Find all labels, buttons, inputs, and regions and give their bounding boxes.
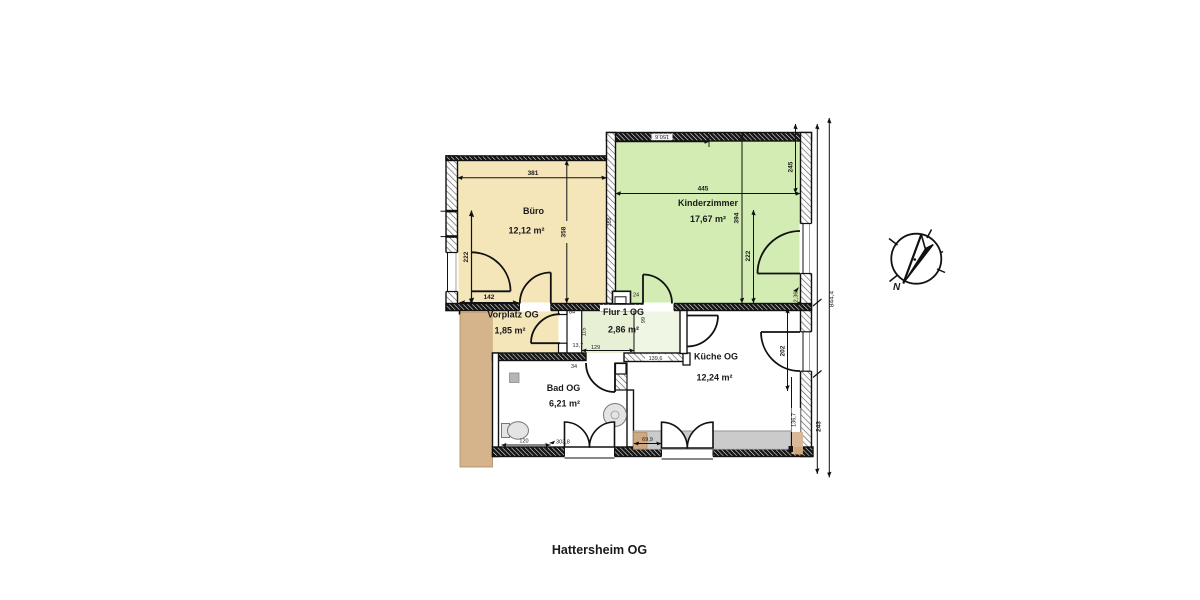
svg-text:394: 394 bbox=[734, 212, 741, 223]
svg-text:Vorplatz OG: Vorplatz OG bbox=[487, 310, 538, 320]
svg-text:Hattersheim OG: Hattersheim OG bbox=[552, 543, 647, 557]
svg-text:12,24 m²: 12,24 m² bbox=[696, 373, 732, 383]
svg-text:844,4: 844,4 bbox=[829, 290, 836, 307]
svg-text:136,7: 136,7 bbox=[792, 413, 798, 427]
svg-text:84: 84 bbox=[569, 310, 575, 316]
svg-text:120: 120 bbox=[519, 439, 528, 445]
svg-text:358: 358 bbox=[561, 226, 568, 237]
svg-text:N: N bbox=[893, 282, 901, 293]
svg-text:243: 243 bbox=[816, 421, 823, 432]
svg-text:222: 222 bbox=[463, 251, 470, 262]
svg-text:142: 142 bbox=[484, 294, 495, 301]
svg-text:245: 245 bbox=[788, 161, 795, 172]
svg-text:Büro: Büro bbox=[523, 206, 544, 216]
svg-text:Bad OG: Bad OG bbox=[547, 383, 581, 393]
svg-text:222: 222 bbox=[745, 250, 752, 261]
svg-text:99: 99 bbox=[641, 317, 647, 323]
svg-text:150,6: 150,6 bbox=[655, 133, 669, 139]
svg-text:202: 202 bbox=[780, 345, 787, 356]
svg-text:12,12 m²: 12,12 m² bbox=[508, 226, 544, 236]
svg-text:115: 115 bbox=[582, 328, 588, 337]
svg-text:6,21 m²: 6,21 m² bbox=[549, 399, 580, 409]
svg-text:129: 129 bbox=[591, 345, 600, 351]
svg-text:69,9: 69,9 bbox=[642, 437, 653, 443]
svg-text:Küche OG: Küche OG bbox=[694, 352, 738, 362]
svg-text:381: 381 bbox=[528, 170, 539, 177]
svg-text:13,7: 13,7 bbox=[573, 343, 584, 349]
svg-text:2,36: 2,36 bbox=[794, 292, 800, 303]
svg-text:1,85 m²: 1,85 m² bbox=[494, 326, 525, 336]
svg-text:445: 445 bbox=[698, 186, 709, 193]
svg-text:358: 358 bbox=[607, 217, 613, 226]
svg-text:34: 34 bbox=[571, 364, 577, 370]
svg-text:Flur 1 OG: Flur 1 OG bbox=[603, 307, 644, 317]
svg-text:303,8: 303,8 bbox=[556, 440, 570, 446]
svg-text:24: 24 bbox=[633, 293, 639, 299]
svg-text:17,67 m²: 17,67 m² bbox=[690, 214, 726, 224]
svg-text:139,6: 139,6 bbox=[649, 356, 663, 362]
svg-text:Kinderzimmer: Kinderzimmer bbox=[678, 198, 739, 208]
